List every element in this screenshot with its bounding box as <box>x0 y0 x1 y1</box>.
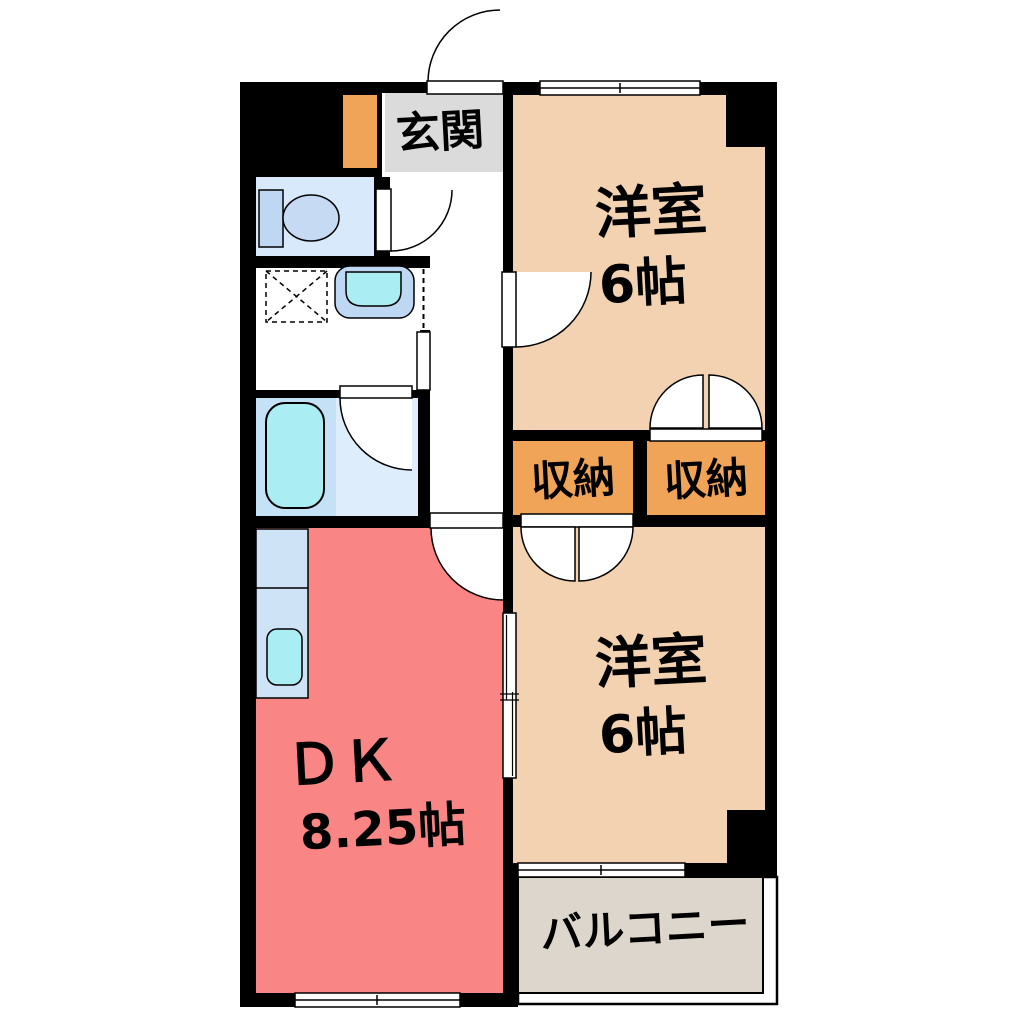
hallway-low <box>430 256 503 513</box>
pillar-top-right <box>726 95 765 147</box>
pillar-bottom-right <box>727 810 765 863</box>
entrance-door <box>427 10 503 94</box>
window-dk <box>295 993 460 1007</box>
dk-label: ＤＫ <box>284 728 399 799</box>
kitchen-sink-icon <box>267 629 302 685</box>
western-top-size-label: 6帖 <box>597 252 688 317</box>
western-bottom-size-label: 6帖 <box>597 702 688 767</box>
dk-sliding-door <box>500 613 519 778</box>
genkan-label: 玄関 <box>395 105 486 161</box>
closet-right-label: 収納 <box>663 453 749 506</box>
bathtub-icon <box>266 403 324 508</box>
western-bottom-label: 洋室 <box>593 627 708 698</box>
kitchen-counter-icon <box>256 529 308 698</box>
window-bottom-room <box>518 863 685 877</box>
floorplan-page: 玄関 洋室 6帖 収納 収納 洋室 6帖 ＤＫ 8.25帖 バルコニー <box>0 0 1020 1020</box>
shoe-cabinet <box>343 95 377 168</box>
washroom-thin-wall <box>417 332 430 390</box>
sink-icon <box>335 266 414 318</box>
western-top-label: 洋室 <box>593 177 708 248</box>
floorplan-svg: 玄関 洋室 6帖 収納 収納 洋室 6帖 ＤＫ 8.25帖 バルコニー <box>0 0 1020 1020</box>
closet-left-label: 収納 <box>530 453 616 506</box>
window-top <box>540 81 700 95</box>
dk-size-label: 8.25帖 <box>298 797 467 862</box>
washroom-folding-door <box>417 268 430 390</box>
